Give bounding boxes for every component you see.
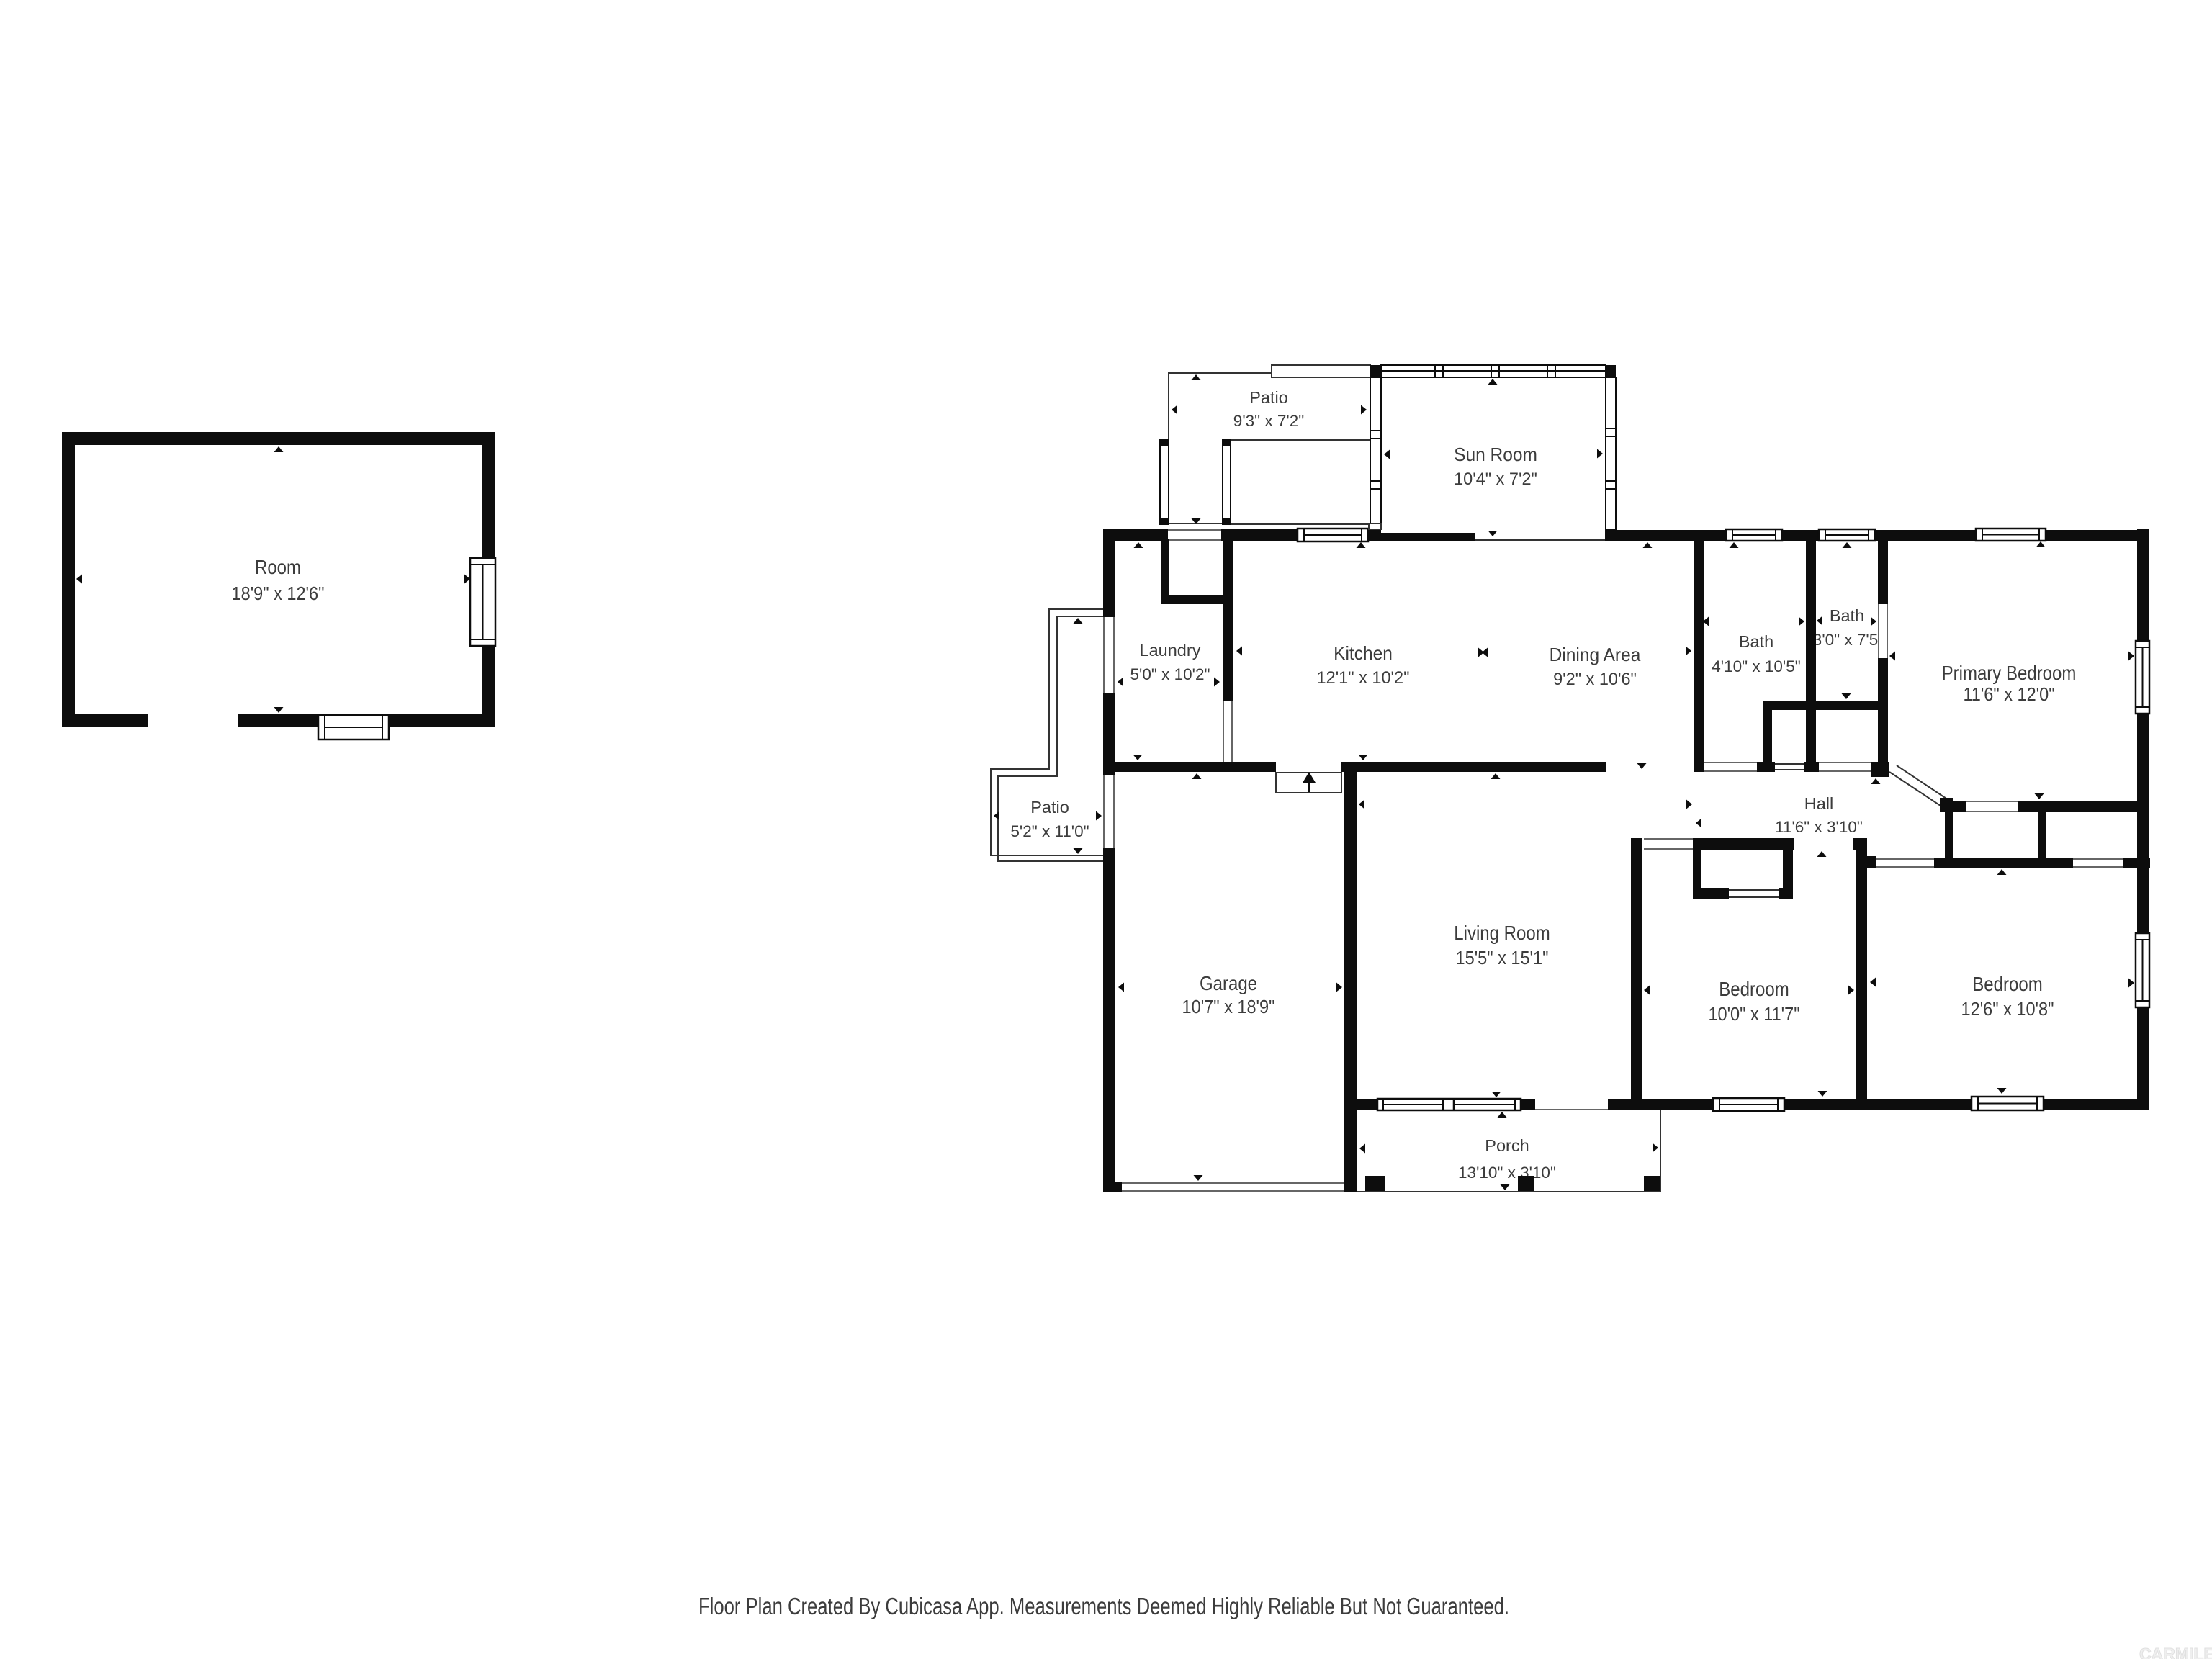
svg-text:13'10" x 3'10": 13'10" x 3'10" — [1458, 1164, 1556, 1182]
svg-text:12'6" x 10'8": 12'6" x 10'8" — [1961, 999, 2054, 1020]
svg-text:4'10" x 10'5": 4'10" x 10'5" — [1712, 657, 1800, 675]
svg-text:5'2" x 11'0": 5'2" x 11'0" — [1010, 822, 1089, 840]
svg-text:10'7" x 18'9": 10'7" x 18'9" — [1182, 997, 1275, 1017]
svg-text:12'1" x 10'2": 12'1" x 10'2" — [1317, 668, 1410, 688]
svg-text:3'0" x 7'5": 3'0" x 7'5" — [1813, 631, 1884, 649]
svg-text:10'0" x 11'7": 10'0" x 11'7" — [1708, 1004, 1799, 1025]
svg-text:Laundry: Laundry — [1140, 641, 1201, 660]
svg-text:Bath: Bath — [1739, 632, 1773, 651]
svg-text:9'3" x 7'2": 9'3" x 7'2" — [1233, 412, 1304, 430]
svg-text:Living Room: Living Room — [1454, 922, 1550, 944]
svg-text:CARMILE, INC: CARMILE, INC — [2139, 1645, 2212, 1659]
svg-text:Primary Bedroom: Primary Bedroom — [1942, 662, 2077, 684]
svg-text:Porch: Porch — [1485, 1136, 1529, 1155]
svg-text:18'9" x 12'6": 18'9" x 12'6" — [232, 584, 325, 604]
svg-text:Dining Area: Dining Area — [1550, 644, 1641, 665]
svg-text:9'2" x 10'6": 9'2" x 10'6" — [1553, 670, 1637, 689]
svg-text:5'0" x 10'2": 5'0" x 10'2" — [1130, 665, 1210, 683]
svg-text:11'6" x 3'10": 11'6" x 3'10" — [1775, 818, 1863, 836]
svg-text:Hall: Hall — [1804, 794, 1834, 813]
svg-text:Kitchen: Kitchen — [1334, 642, 1393, 664]
svg-text:11'6" x 12'0": 11'6" x 12'0" — [1963, 685, 2054, 705]
svg-text:15'5" x 15'1": 15'5" x 15'1" — [1456, 948, 1549, 968]
svg-text:Patio: Patio — [1030, 798, 1069, 817]
svg-text:Bath: Bath — [1830, 606, 1864, 625]
svg-text:Sun Room: Sun Room — [1454, 444, 1537, 465]
svg-text:Garage: Garage — [1200, 972, 1257, 994]
svg-text:Bedroom: Bedroom — [1972, 973, 2042, 995]
svg-text:Room: Room — [255, 556, 301, 578]
svg-text:10'4" x 7'2": 10'4" x 7'2" — [1454, 469, 1537, 489]
svg-text:Patio: Patio — [1249, 388, 1288, 407]
svg-text:Bedroom: Bedroom — [1719, 978, 1789, 1000]
svg-text:Floor Plan Created By Cubicasa: Floor Plan Created By Cubicasa App. Meas… — [698, 1593, 1509, 1619]
